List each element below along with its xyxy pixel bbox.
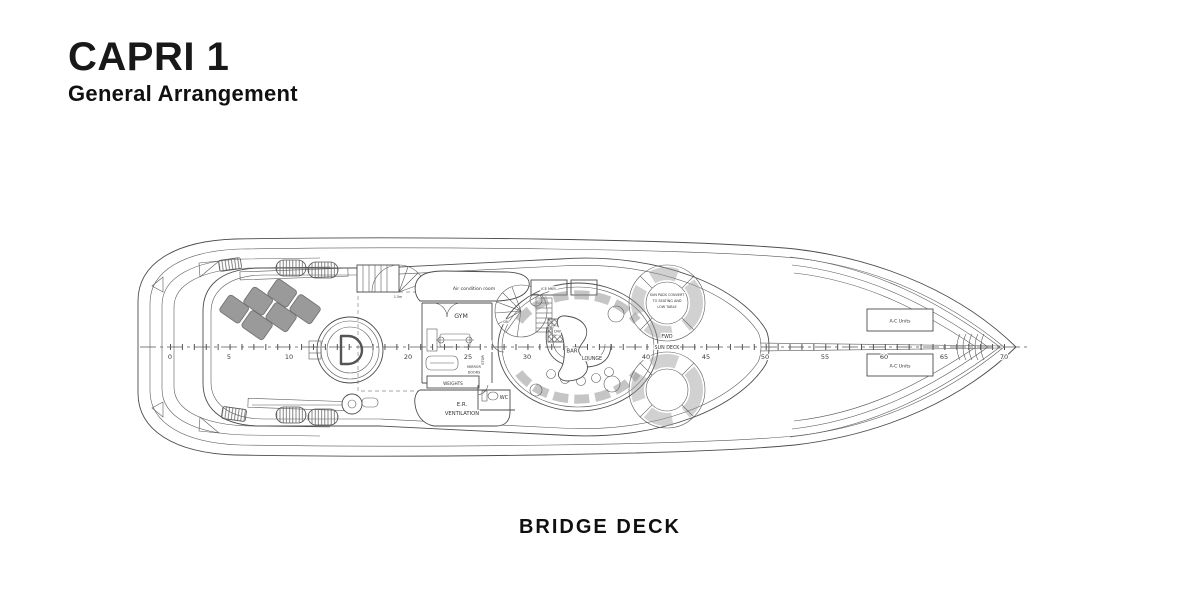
ac-units-label-bottom: A-C Units <box>889 364 911 370</box>
mirror-doors-label-2: DOORS <box>468 371 480 375</box>
scale-tick-label: 60 <box>880 353 888 361</box>
jacuzzi <box>309 317 383 383</box>
wc-label: WC <box>500 395 509 401</box>
scale-tick-label: 50 <box>761 353 769 361</box>
drawing-footer: BRIDGE DECK <box>0 516 1200 539</box>
fwd-sun-deck-seating-bottom <box>629 352 705 428</box>
stair-radius-note: 1.5m <box>394 295 402 299</box>
sun-deck-label: SUN DECK <box>655 345 681 351</box>
sun-pads-note-2: TO SEATING AND <box>652 299 682 303</box>
air-condition-room-label: Air condition room <box>453 286 496 292</box>
scale-tick-label: 45 <box>702 353 710 361</box>
capstan <box>342 394 378 414</box>
deck-plan-drawing: Air condition room GYM STOR MIRROR DOORS… <box>0 0 1200 600</box>
er-ventilation-label-1: E.R. <box>457 402 468 408</box>
er-ventilation-label-2: VENTILATION <box>445 411 479 417</box>
scale-tick-label: 20 <box>404 353 412 361</box>
sun-pads-note-1: SUN PADS CONVERT <box>650 293 685 297</box>
scale-tick-label: 70 <box>1000 353 1008 361</box>
fwd-sun-deck-seating-top <box>629 265 705 341</box>
ga-drawing-page: CAPRI 1 General Arrangement <box>0 0 1200 600</box>
dumbwaiter-label: DW <box>554 329 561 334</box>
ice-maker-label: ICE MKR. <box>541 287 557 291</box>
stair-down-label: DN <box>503 320 509 324</box>
sun-pads-note-3: LOW TABLE <box>657 305 676 309</box>
scale-tick-label: 10 <box>285 353 293 361</box>
scale-tick-label: 40 <box>642 353 650 361</box>
er-ventilation-room <box>415 390 510 426</box>
scale-tick-label: 65 <box>940 353 948 361</box>
air-condition-room <box>415 271 529 301</box>
lounge-label: LOUNGE <box>582 356 602 362</box>
deck-name: BRIDGE DECK <box>519 516 681 538</box>
scale-tick-label: 0 <box>168 353 172 361</box>
sun-loungers <box>219 278 322 341</box>
weights-label: WEIGHTS <box>443 381 463 386</box>
scale-tick-label: 5 <box>227 353 231 361</box>
ac-units-label-top: A-C Units <box>889 319 911 325</box>
scale-tick-label: 25 <box>464 353 472 361</box>
bar-label: BAR <box>566 349 577 355</box>
fwd-label: FWD <box>661 334 673 340</box>
scale-tick-label: 55 <box>821 353 829 361</box>
mirror-doors-label-1: MIRROR <box>467 365 481 369</box>
gym-label: GYM <box>454 313 468 320</box>
stor-label: STOR <box>481 355 485 365</box>
scale-tick-label: 30 <box>523 353 531 361</box>
